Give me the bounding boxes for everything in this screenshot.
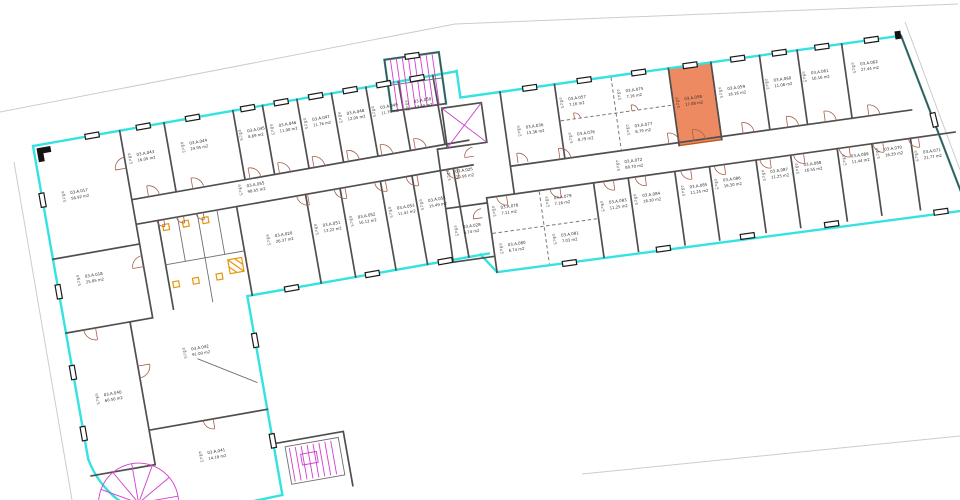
svg-text:IDNRFLLH: IDNRFLLH bbox=[914, 149, 920, 162]
svg-text:IDNRFLLH: IDNRFLLH bbox=[617, 88, 623, 101]
room-label-r088: IDNRFLLH03.A.08816.55 m2 bbox=[795, 159, 824, 175]
room-label-tag: LH bbox=[271, 131, 275, 136]
room-label-r025: IDNRFLLH03.A.02520.56 m2 bbox=[446, 165, 475, 181]
floor-plan-canvas: IDNRFLLH03.A.01756.92 m2IDNRFLLH03.A.043… bbox=[0, 0, 960, 500]
room-area: 6.74 m2 bbox=[463, 228, 480, 235]
room-label-tag: LH bbox=[77, 282, 81, 287]
room-label-r049: IDNRFLLH03.A.04911.75 m2 bbox=[371, 101, 400, 118]
room-label-tag: LH bbox=[715, 186, 719, 190]
room-label-r071: IDNRFLLH03.A.07121.77 m2 bbox=[914, 146, 943, 162]
room-label-tag: LH bbox=[877, 155, 881, 159]
svg-text:IDNRFLLH: IDNRFLLH bbox=[626, 123, 632, 136]
floor-plan-drawing: IDNRFLLH03.A.01756.92 m2IDNRFLLH03.A.043… bbox=[0, 0, 960, 500]
door-arc bbox=[464, 147, 474, 157]
svg-text:IDNRFLLH: IDNRFLLH bbox=[270, 123, 276, 136]
room-label-tag: LH bbox=[627, 132, 631, 136]
room-label-r083: IDNRFLLH03.A.08311.25 m2 bbox=[600, 196, 629, 212]
window-marker bbox=[136, 123, 151, 130]
room-label-tag: LH bbox=[518, 133, 522, 137]
svg-text:IDNRFLLH: IDNRFLLH bbox=[568, 131, 574, 144]
room-label-tag: LH bbox=[601, 208, 605, 212]
window-marker bbox=[69, 365, 76, 380]
svg-text:IDNRFLLH: IDNRFLLH bbox=[718, 86, 724, 99]
room-label-r055: IDNRFLLH03.A.05598.55 m2 bbox=[238, 179, 267, 196]
room-area: 7.16 m2 bbox=[554, 199, 571, 206]
room-label-r051: IDNRFLLH03.A.05113.22 m2 bbox=[314, 218, 343, 235]
window-marker bbox=[274, 99, 289, 106]
room-label-tag: LH bbox=[720, 95, 724, 99]
room-label-r041: IDNRFLLH03.A.04114.18 m2 bbox=[198, 446, 227, 463]
room-label-r043: IDNRFLLH03.A.04316.05 m2 bbox=[128, 148, 157, 165]
svg-text:IDNRFLLH: IDNRFLLH bbox=[761, 169, 767, 182]
room-label-r028: IDNRFLLH03.A.0286.74 m2 bbox=[454, 221, 482, 237]
svg-text:IDNRFLLH: IDNRFLLH bbox=[681, 184, 687, 197]
room-label-tag: LH bbox=[843, 162, 847, 166]
window-marker bbox=[631, 69, 646, 76]
window-marker bbox=[185, 114, 200, 121]
room-label-r075: IDNRFLLH03.A.0757.16 m2 bbox=[617, 85, 645, 101]
room-label-tag: LH bbox=[766, 86, 770, 90]
room-label-r076: IDNRFLLH03.A.0768.79 m2 bbox=[568, 128, 596, 144]
window-marker bbox=[405, 52, 420, 59]
window-marker bbox=[85, 132, 100, 139]
room-area: 7.16 m2 bbox=[626, 92, 643, 99]
svg-text:IDNRFLLH: IDNRFLLH bbox=[633, 193, 639, 206]
spiral-staircase bbox=[92, 457, 185, 500]
room-label-tag: LH bbox=[339, 119, 343, 124]
window-marker bbox=[772, 49, 787, 56]
room-label-tag: LH bbox=[803, 79, 807, 83]
room-label-tag: LH bbox=[762, 177, 766, 181]
room-label-tag: LH bbox=[373, 113, 377, 118]
window-marker bbox=[365, 270, 380, 277]
room-area: 7.11 m2 bbox=[501, 208, 518, 215]
svg-text:IDNRFLLH: IDNRFLLH bbox=[559, 96, 565, 109]
room-label-r060: IDNRFLLH03.A.06011.08 m2 bbox=[765, 74, 794, 90]
room-label-r077: IDNRFLLH03.A.0778.79 m2 bbox=[626, 120, 654, 136]
svg-text:IDNRFLLH: IDNRFLLH bbox=[405, 99, 411, 112]
room-label-r040: IDNRFLLH03.A.04060.50 m2 bbox=[95, 388, 124, 405]
room-label-tag: LH bbox=[63, 199, 67, 204]
room-label-tag: LH bbox=[305, 125, 309, 130]
left-wing-outline bbox=[33, 71, 524, 500]
window-marker bbox=[438, 257, 453, 264]
room-area: 7.03 m2 bbox=[561, 236, 578, 243]
room-label-tag: LH bbox=[617, 168, 621, 172]
svg-text:IDNRFLLH: IDNRFLLH bbox=[180, 140, 186, 153]
room-label-tag: LH bbox=[129, 160, 133, 165]
svg-text:IDNRFLLH: IDNRFLLH bbox=[492, 205, 498, 218]
room-label-tag: LH bbox=[96, 401, 100, 406]
room-label-r047: IDNRFLLH03.A.04711.76 m2 bbox=[303, 113, 332, 130]
room-label-tag: LH bbox=[389, 214, 393, 219]
svg-text:IDNRFLLH: IDNRFLLH bbox=[198, 450, 204, 463]
room-label-tag: LH bbox=[200, 459, 204, 464]
room-label-r057: IDNRFLLH03.A.0577.16 m2 bbox=[559, 93, 587, 109]
svg-text:IDNRFLLH: IDNRFLLH bbox=[128, 152, 134, 165]
svg-text:IDNRFLLH: IDNRFLLH bbox=[446, 168, 452, 181]
room-label-tag: LH bbox=[421, 207, 425, 212]
room-label-r044: IDNRFLLH03.A.04424.95 m2 bbox=[180, 136, 209, 153]
svg-text:IDNRFLLH: IDNRFLLH bbox=[182, 346, 188, 359]
left-wing-walls bbox=[33, 71, 524, 500]
room-label-r085: IDNRFLLH03.A.08511.25 m2 bbox=[681, 181, 710, 197]
svg-text:IDNRFLLH: IDNRFLLH bbox=[388, 205, 394, 218]
svg-text:IDNRFLLH: IDNRFLLH bbox=[616, 159, 622, 172]
svg-text:IDNRFLLH: IDNRFLLH bbox=[314, 223, 320, 236]
room-label-tag: LH bbox=[267, 242, 271, 247]
svg-text:IDNRFLLH: IDNRFLLH bbox=[76, 274, 82, 287]
room-label-tag: LH bbox=[796, 171, 800, 175]
room-label-r080: IDNRFLLH03.A.0806.74 m2 bbox=[499, 239, 527, 255]
room-label-tag: LH bbox=[852, 70, 856, 74]
room-label-tag: LH bbox=[618, 97, 622, 101]
window-marker bbox=[562, 260, 577, 267]
window-marker bbox=[251, 333, 258, 348]
svg-text:IDNRFLLH: IDNRFLLH bbox=[338, 111, 344, 124]
room-area: 6.74 m2 bbox=[508, 246, 525, 253]
svg-text:IDNRFLLH: IDNRFLLH bbox=[517, 124, 523, 137]
room-label-tag: LH bbox=[635, 201, 639, 205]
window-marker bbox=[934, 208, 949, 215]
room-label-tag: LH bbox=[915, 158, 919, 162]
wc-partitions bbox=[158, 207, 268, 395]
window-marker bbox=[815, 43, 830, 50]
room-label-tag: LH bbox=[240, 137, 244, 142]
svg-text:IDNRFLLH: IDNRFLLH bbox=[765, 77, 771, 90]
room-label-tag: LH bbox=[315, 231, 319, 236]
svg-text:IDNRFLLH: IDNRFLLH bbox=[303, 117, 309, 130]
room-label-tag: LH bbox=[184, 355, 188, 360]
window-marker bbox=[308, 92, 323, 99]
room-label-r036: IDNRFLLH03.A.03613.36 m2 bbox=[517, 121, 546, 137]
room-label-r087: IDNRFLLH03.A.08711.25 m2 bbox=[761, 165, 790, 181]
room-label-r054: IDNRFLLH03.A.05415.49 m2 bbox=[419, 194, 448, 211]
room-label-r045: IDNRFLLH03.A.0458.69 m2 bbox=[238, 124, 267, 141]
room-label-r048: IDNRFLLH03.A.04812.05 m2 bbox=[338, 107, 367, 124]
window-marker bbox=[343, 86, 358, 93]
room-label-tag: LH bbox=[493, 213, 497, 217]
room-label-r062: IDNRFLLH03.A.06227.44 m2 bbox=[851, 58, 880, 74]
room-label-r052: IDNRFLLH03.A.05216.12 m2 bbox=[349, 210, 378, 227]
room-label-r081: IDNRFLLH03.A.0817.03 m2 bbox=[552, 229, 580, 245]
room-label-r046: IDNRFLLH03.A.04611.90 m2 bbox=[270, 119, 299, 136]
room-label-r089: IDNRFLLH03.A.08911.44 m2 bbox=[842, 150, 871, 166]
window-marker bbox=[930, 112, 938, 127]
right-wing bbox=[384, 0, 960, 288]
annex-stair bbox=[285, 437, 345, 484]
window-marker bbox=[577, 77, 592, 84]
window-marker bbox=[80, 426, 87, 441]
room-label-r042: IDNRFLLH03.A.04291.00 m2 bbox=[182, 342, 211, 359]
svg-text:IDNRFLLH: IDNRFLLH bbox=[795, 162, 801, 175]
room-label-tag: LH bbox=[500, 251, 504, 255]
svg-text:IDNRFLLH: IDNRFLLH bbox=[238, 128, 244, 141]
window-marker bbox=[656, 245, 671, 252]
window-marker bbox=[269, 434, 276, 449]
window-marker bbox=[55, 284, 62, 299]
window-marker bbox=[39, 193, 46, 208]
svg-text:IDNRFLLH: IDNRFLLH bbox=[349, 214, 355, 227]
room-area: 7.16 m2 bbox=[569, 100, 586, 107]
svg-text:IDNRFLLH: IDNRFLLH bbox=[545, 195, 551, 208]
room-area: 8.79 m2 bbox=[635, 127, 652, 134]
room-label-tag: LH bbox=[560, 105, 564, 109]
svg-text:IDNRFLLH: IDNRFLLH bbox=[802, 70, 808, 83]
left-wing bbox=[33, 71, 528, 500]
svg-text:IDNRFLLH: IDNRFLLH bbox=[266, 233, 272, 246]
window-marker bbox=[240, 104, 255, 111]
svg-text:IDNRFLLH: IDNRFLLH bbox=[61, 190, 67, 203]
svg-text:IDNRFLLH: IDNRFLLH bbox=[842, 153, 848, 166]
room-label-r018: IDNRFLLH03.A.01825.85 m2 bbox=[76, 270, 105, 287]
window-marker bbox=[522, 84, 537, 91]
svg-text:IDNRFLLH: IDNRFLLH bbox=[238, 183, 244, 196]
room-label-r086: IDNRFLLH03.A.08616.30 m2 bbox=[714, 174, 743, 190]
room-label-tag: LH bbox=[546, 204, 550, 208]
svg-text:IDNRFLLH: IDNRFLLH bbox=[600, 199, 606, 212]
svg-text:IDNRFLLH: IDNRFLLH bbox=[419, 198, 425, 211]
svg-text:IDNRFLLH: IDNRFLLH bbox=[875, 147, 881, 160]
room-label-tag: LH bbox=[447, 177, 451, 181]
svg-text:IDNRFLLH: IDNRFLLH bbox=[95, 392, 101, 405]
window-marker bbox=[864, 36, 879, 43]
room-label-tag: LH bbox=[677, 105, 681, 109]
room-label-tag: LH bbox=[182, 149, 186, 154]
door-arcs-layer bbox=[84, 103, 920, 430]
room-area: 8.79 m2 bbox=[578, 135, 595, 142]
room-label-r061: IDNRFLLH03.A.06116.16 m2 bbox=[802, 67, 831, 83]
svg-text:IDNRFLLH: IDNRFLLH bbox=[714, 177, 720, 190]
svg-text:IDNRFLLH: IDNRFLLH bbox=[499, 242, 505, 255]
room-label-r072: IDNRFLLH03.A.07280.70 m2 bbox=[616, 156, 645, 172]
window-marker bbox=[284, 285, 299, 292]
svg-text:IDNRFLLH: IDNRFLLH bbox=[371, 105, 377, 118]
room-label-tag: LH bbox=[569, 140, 573, 144]
room-label-r079: IDNRFLLH03.A.0797.16 m2 bbox=[545, 192, 573, 208]
svg-text:IDNRFLLH: IDNRFLLH bbox=[552, 232, 558, 245]
room-label-tag: LH bbox=[553, 241, 557, 245]
room-label-tag: LH bbox=[350, 223, 354, 228]
room-label-r020: IDNRFLLH03.A.02026.37 m2 bbox=[266, 229, 295, 246]
room-label-r084: IDNRFLLH03.A.08416.30 m2 bbox=[633, 189, 662, 205]
svg-text:IDNRFLLH: IDNRFLLH bbox=[454, 224, 460, 237]
svg-text:IDNRFLLH: IDNRFLLH bbox=[851, 61, 857, 74]
room-label-r053: IDNRFLLH03.A.05311.41 m2 bbox=[388, 201, 417, 218]
room-label-tag: LH bbox=[682, 193, 686, 197]
room-label-tag: LH bbox=[455, 233, 459, 237]
window-marker bbox=[730, 55, 745, 62]
door-arc bbox=[631, 104, 638, 111]
door-arc bbox=[517, 152, 528, 163]
room-label-r078: IDNRFLLH03.A.0787.11 m2 bbox=[492, 201, 520, 217]
room-label-r059: IDNRFLLH03.A.05916.16 m2 bbox=[718, 83, 747, 99]
room-label-tag: LH bbox=[239, 192, 243, 197]
corner-marker-icon bbox=[894, 31, 901, 40]
door-arc bbox=[472, 209, 482, 219]
corner-marker-icon bbox=[36, 146, 52, 162]
room-label-r017: IDNRFLLH03.A.01756.92 m2 bbox=[61, 186, 90, 203]
